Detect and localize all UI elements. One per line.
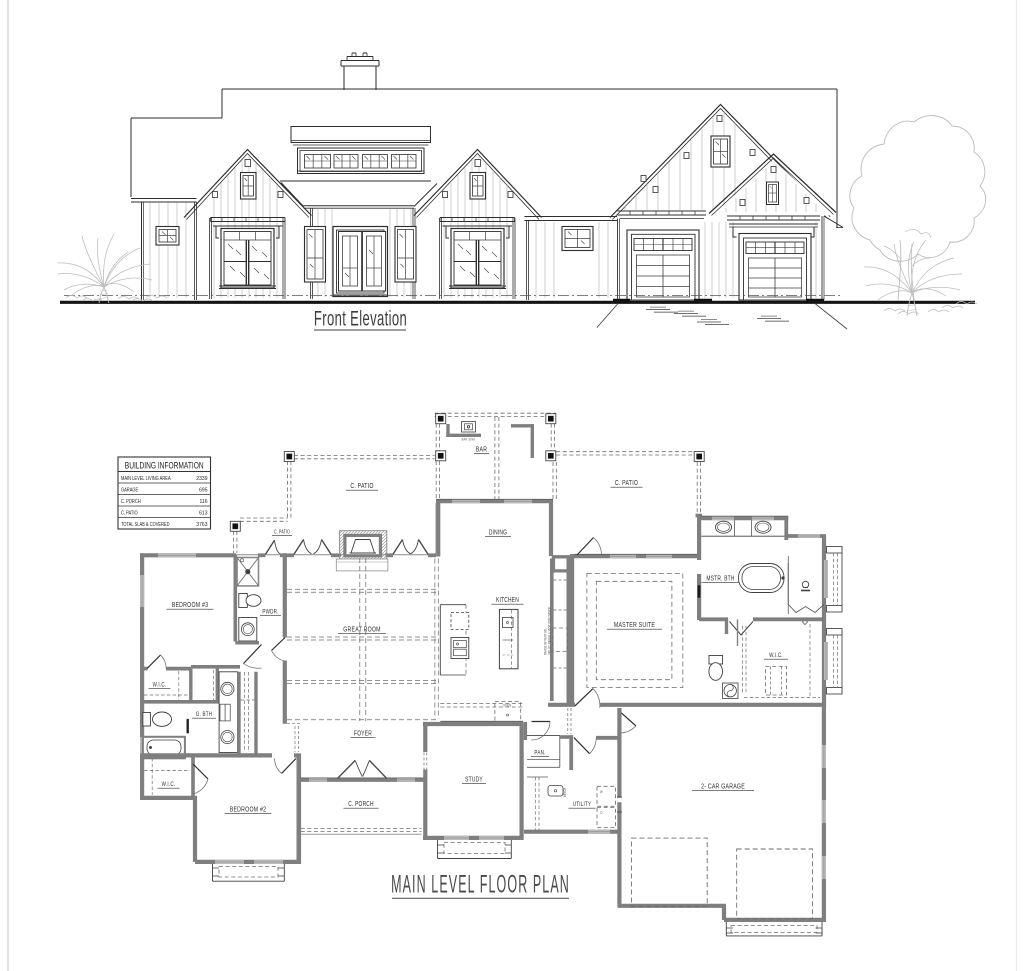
svg-text:C. PORCH: C. PORCH xyxy=(348,801,374,808)
svg-text:PWDR.: PWDR. xyxy=(262,609,278,616)
svg-text:TOTAL SLAB & COVERED: TOTAL SLAB & COVERED xyxy=(121,521,170,528)
svg-text:UTILITY: UTILITY xyxy=(573,801,591,808)
svg-text:BUILDING INFORMATION: BUILDING INFORMATION xyxy=(125,460,204,470)
svg-text:D: D xyxy=(600,811,603,815)
svg-text:3763: 3763 xyxy=(196,522,207,528)
svg-text:Front Elevation: Front Elevation xyxy=(314,306,407,330)
svg-text:OVEN: OVEN xyxy=(503,703,512,707)
svg-text:W.I.C.: W.I.C. xyxy=(769,652,783,659)
svg-text:SEE GC RANGE & VENT PER OWNER: SEE GC RANGE & VENT PER OWNER xyxy=(547,607,552,655)
svg-text:MSTR. BTH: MSTR. BTH xyxy=(706,576,734,583)
svg-text:C. PATIO: C. PATIO xyxy=(121,510,138,517)
svg-text:695: 695 xyxy=(199,487,207,493)
svg-text:GARAGE: GARAGE xyxy=(121,487,139,494)
svg-text:116: 116 xyxy=(199,499,207,505)
svg-text:613: 613 xyxy=(199,510,207,516)
svg-text:2- CAR GARAGE: 2- CAR GARAGE xyxy=(701,783,745,791)
svg-text:C. PATIO: C. PATIO xyxy=(615,479,638,487)
svg-text:W.I.C.: W.I.C. xyxy=(153,682,167,689)
svg-text:MASTER SUITE: MASTER SUITE xyxy=(614,621,656,629)
svg-text:KITCHEN: KITCHEN xyxy=(496,597,519,604)
svg-text:BEDROOM #2: BEDROOM #2 xyxy=(230,806,267,814)
svg-text:BAR: BAR xyxy=(476,446,487,454)
svg-text:MAIN LEVEL LIVING AREA: MAIN LEVEL LIVING AREA xyxy=(121,475,171,482)
svg-text:2339: 2339 xyxy=(196,476,207,482)
svg-text:FOYER: FOYER xyxy=(354,731,372,738)
svg-text:STUDY: STUDY xyxy=(465,777,483,784)
svg-text:C. PATIO: C. PATIO xyxy=(274,529,290,535)
svg-text:BAR SINK: BAR SINK xyxy=(462,437,476,441)
svg-text:PAN.: PAN. xyxy=(534,750,545,757)
svg-text:MAIN LEVEL FLOOR PLAN: MAIN LEVEL FLOOR PLAN xyxy=(391,871,570,899)
svg-text:C. PATIO: C. PATIO xyxy=(350,482,373,490)
svg-text:W.I.C.: W.I.C. xyxy=(162,781,176,788)
svg-text:GREAT ROOM: GREAT ROOM xyxy=(343,626,380,634)
svg-text:G. BTH: G. BTH xyxy=(196,711,212,718)
svg-text:BEDROOM #3: BEDROOM #3 xyxy=(172,601,209,609)
svg-text:C. PORCH: C. PORCH xyxy=(121,498,141,505)
svg-text:DINING: DINING xyxy=(489,530,507,537)
svg-text:BENCH: BENCH xyxy=(563,788,568,797)
